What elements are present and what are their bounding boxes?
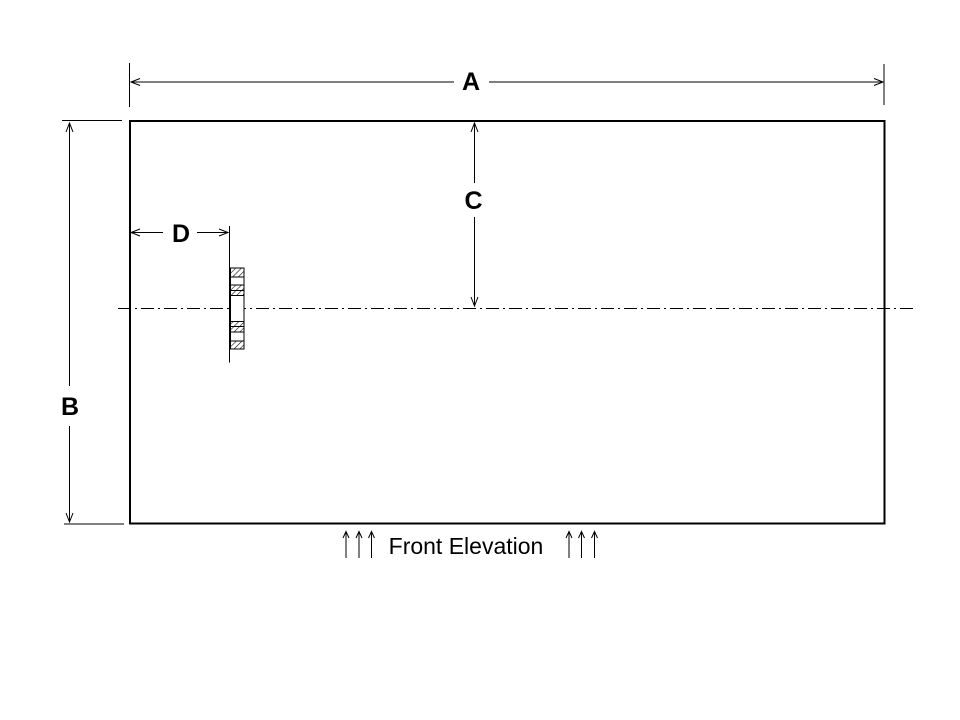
title-arrows-left — [343, 532, 375, 559]
flange-segment-hatched — [231, 322, 245, 327]
drawing-linework — [62, 63, 915, 558]
flange-detail — [230, 226, 245, 363]
dimension-b — [62, 121, 124, 525]
drawing-canvas: A B C D Front Elevation — [0, 0, 960, 720]
dimension-c-label: C — [464, 187, 482, 215]
flange-segment-hatched — [231, 268, 245, 277]
dimension-a-label: A — [462, 68, 480, 96]
front-elevation-drawing: A B C D Front Elevation — [0, 0, 960, 720]
flange-segment-hatched — [231, 327, 245, 333]
dimension-d-label: D — [172, 220, 190, 248]
flange-segment-hatched — [231, 341, 245, 349]
title-arrows-right — [566, 532, 598, 559]
flange-segment-plain — [231, 296, 245, 322]
drawing-title: Front Elevation — [389, 533, 544, 559]
flange-segment-hatched — [231, 291, 245, 296]
flange-segment-plain — [231, 332, 245, 341]
flange-segment-plain — [231, 277, 245, 285]
flange-segment-hatched — [231, 285, 245, 291]
dimension-a — [130, 63, 885, 107]
dimension-b-label: B — [61, 393, 79, 421]
